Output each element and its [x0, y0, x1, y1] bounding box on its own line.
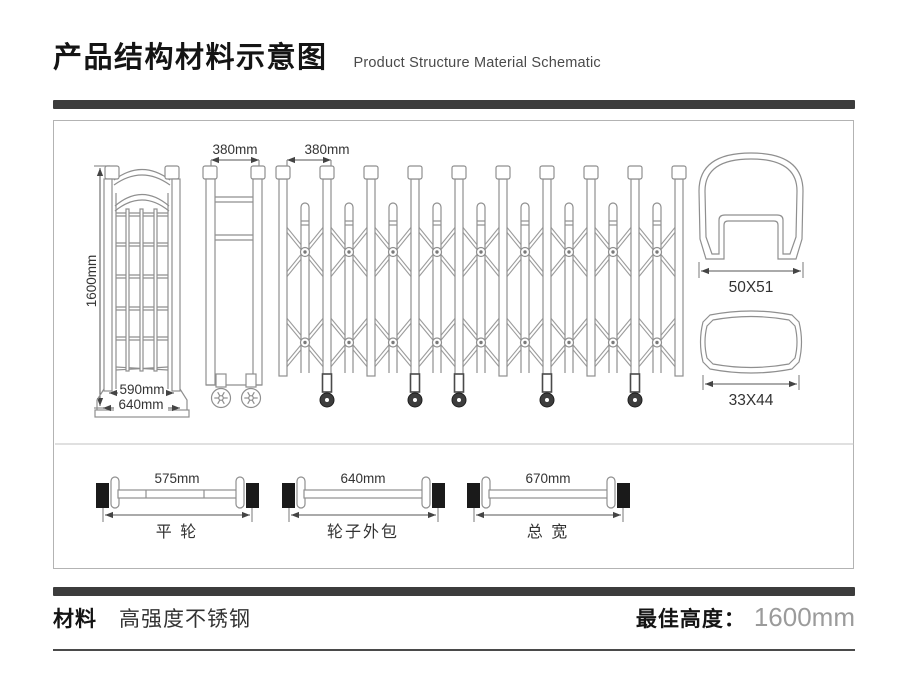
material-label: 材料 — [53, 603, 97, 633]
lattice-node-pin — [567, 341, 570, 344]
gate-post — [543, 179, 551, 376]
gate-post — [631, 179, 639, 376]
extended-gate-view: 380mm — [276, 142, 686, 407]
wheel-stem — [631, 374, 640, 392]
bottom-divider-bar — [53, 587, 855, 596]
profile-50x51-view: 50X51 — [699, 153, 803, 296]
closed-unit-width-label: 380mm — [212, 142, 257, 157]
gate-post — [253, 179, 262, 385]
lattice-node-pin — [567, 250, 570, 253]
gate-wheel-hub — [457, 398, 461, 402]
gate-post — [455, 179, 463, 376]
lattice-node-pin — [347, 250, 350, 253]
axle-dimension-label: 670mm — [525, 471, 570, 486]
best-height-info: 最佳高度： 1600mm — [636, 602, 855, 633]
gate-post — [587, 179, 595, 376]
post-cap — [165, 166, 179, 179]
gate-post — [172, 179, 180, 391]
axle-total-width: 670mm 总 宽 — [467, 471, 630, 541]
axle-shaft — [489, 490, 608, 498]
gate-wheel-hub — [545, 398, 549, 402]
wheel-block — [282, 483, 295, 508]
post-cap — [452, 166, 466, 179]
axle-pin — [422, 477, 430, 508]
gate-post — [675, 179, 683, 376]
lattice-node-pin — [391, 341, 394, 344]
wheel-mount — [216, 374, 226, 387]
wheel-stem — [455, 374, 464, 392]
folded-gate-height-label: 1600mm — [84, 255, 99, 308]
wheel-block — [467, 483, 480, 508]
tube-profile-outline — [701, 311, 802, 373]
scissor-lattice — [276, 166, 686, 407]
lattice-node-pin — [479, 250, 482, 253]
axle-dimension-label: 575mm — [154, 471, 199, 486]
gate-wheel-hub — [413, 398, 417, 402]
post-cap — [496, 166, 510, 179]
wheel-mount — [246, 374, 256, 387]
best-height-value: 1600mm — [754, 602, 855, 633]
post-cap — [628, 166, 642, 179]
tube-profile-size-label: 33X44 — [729, 392, 774, 409]
base-inner-width-label: 590mm — [119, 382, 164, 397]
footer: 材料 高强度不锈钢 最佳高度： 1600mm — [53, 602, 855, 633]
lattice-node-pin — [655, 250, 658, 253]
lattice-node-pin — [303, 341, 306, 344]
gate-post — [367, 179, 375, 376]
schematic-drawing: 1600mm 590mm 640mm — [54, 121, 855, 570]
lattice-node-pin — [479, 341, 482, 344]
post-cap — [276, 166, 290, 179]
lattice-node-pin — [523, 341, 526, 344]
page-subtitle: Product Structure Material Schematic — [354, 55, 601, 71]
gate-base-foot — [180, 389, 187, 411]
material-value: 高强度不锈钢 — [119, 603, 251, 633]
lattice-node-pin — [347, 341, 350, 344]
axle-shaft — [118, 490, 237, 498]
lattice-node-pin — [303, 250, 306, 253]
axle-dimension-label: 640mm — [340, 471, 385, 486]
closed-unit-view: 380mm — [203, 142, 265, 408]
wheel-stem — [543, 374, 552, 392]
post-cap — [203, 166, 217, 179]
wheel-stem — [411, 374, 420, 392]
gate-post — [104, 179, 112, 391]
gate-wheel-hub — [633, 398, 637, 402]
gate-arch — [114, 175, 170, 185]
axle-pin — [607, 477, 615, 508]
lattice-node-pin — [611, 341, 614, 344]
lattice-node-pin — [523, 250, 526, 253]
wheel-block — [96, 483, 109, 508]
tube-profile-inner-outline — [705, 317, 797, 368]
unit-rails — [215, 197, 253, 240]
footer-underline — [53, 649, 855, 651]
lattice-node-pin — [655, 341, 658, 344]
gate-wheel-hub — [325, 398, 329, 402]
extended-pitch-label: 380mm — [304, 142, 349, 157]
axle-shaft — [304, 490, 423, 498]
lattice-node-pin — [435, 250, 438, 253]
lattice-node-pin — [391, 250, 394, 253]
wheel-block — [617, 483, 630, 508]
material-info: 材料 高强度不锈钢 — [53, 603, 251, 633]
folded-gate-view: 1600mm 590mm 640mm — [84, 166, 189, 417]
axle-name-label: 轮子外包 — [327, 523, 399, 541]
wheel-block — [432, 483, 445, 508]
post-cap — [540, 166, 554, 179]
base-outer-width-label: 640mm — [118, 397, 163, 412]
axle-name-label: 平 轮 — [156, 523, 198, 541]
lattice-node-pin — [435, 341, 438, 344]
page-header: 产品结构材料示意图 Product Structure Material Sch… — [53, 34, 601, 76]
gate-post — [411, 179, 419, 376]
post-cap — [584, 166, 598, 179]
axle-flat-wheel: 575mm 平 轮 — [96, 471, 259, 541]
axle-name-label: 总 宽 — [527, 523, 569, 541]
diagram-panel: 1600mm 590mm 640mm — [53, 120, 854, 569]
rail-profile-size-label: 50X51 — [729, 279, 774, 296]
spoked-wheel — [242, 389, 261, 408]
profile-33x44-view: 33X44 — [701, 311, 802, 409]
gate-post — [206, 179, 215, 385]
gate-post — [499, 179, 507, 376]
post-cap — [105, 166, 119, 179]
spoked-wheel — [212, 389, 231, 408]
rail-profile-inner-outline — [705, 159, 797, 254]
post-cap — [672, 166, 686, 179]
post-cap — [408, 166, 422, 179]
wheel-stem — [323, 374, 332, 392]
post-cap — [251, 166, 265, 179]
page-title: 产品结构材料示意图 — [53, 34, 328, 76]
gate-post — [323, 179, 331, 376]
axle-pin — [236, 477, 244, 508]
axle-wheel-wrap: 640mm 轮子外包 — [282, 471, 445, 541]
post-cap — [320, 166, 334, 179]
gate-post — [279, 179, 287, 376]
picket-panel — [116, 209, 168, 371]
top-divider-bar — [53, 100, 855, 109]
lattice-node-pin — [611, 250, 614, 253]
best-height-label: 最佳高度： — [636, 603, 746, 633]
post-cap — [364, 166, 378, 179]
wheel-block — [246, 483, 259, 508]
